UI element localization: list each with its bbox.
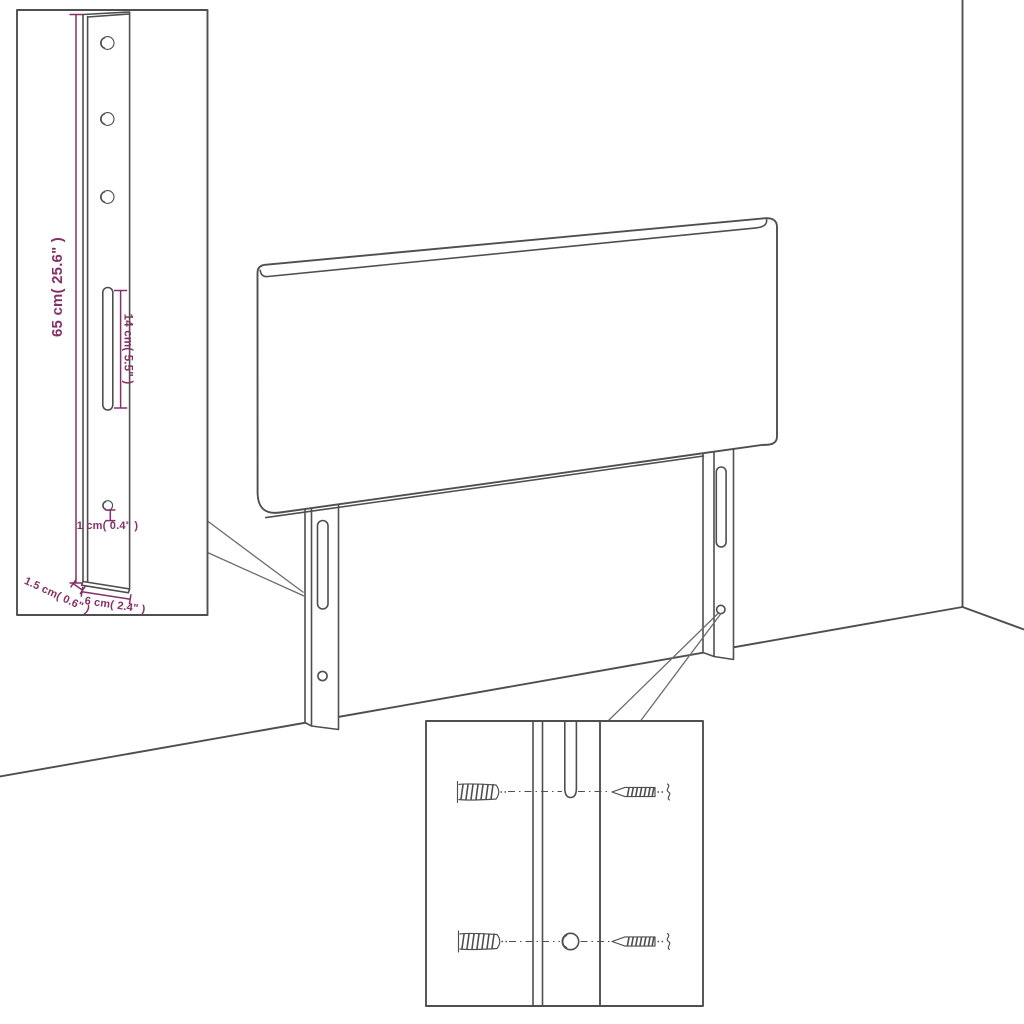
leg-detail-callout: 65 cm( 25.6" ) 14 cm( 5.5" ) 1 cm( 0.4" …: [17, 10, 208, 616]
hardware-callout-connector-right: [641, 614, 722, 722]
leg-slot: [318, 521, 329, 610]
hardware-detail-callout: [426, 721, 703, 1006]
diagram-stage: 65 cm( 25.6" ) 14 cm( 5.5" ) 1 cm( 0.4" …: [0, 0, 1024, 1024]
callout-connectors: [208, 521, 722, 721]
leg-hole: [318, 671, 327, 680]
dimension-label-hole: 1 cm( 0.4" ): [77, 520, 139, 532]
leg-slot: [716, 467, 726, 547]
headboard-panel: [258, 218, 778, 517]
headboard-leg-left: [305, 504, 339, 730]
dimension-label-height: 65 cm( 25.6" ): [49, 237, 66, 337]
floor-line-right: [963, 607, 1024, 630]
leg-slot: [103, 288, 113, 411]
headboard-assembly-diagram: 65 cm( 25.6" ) 14 cm( 5.5" ) 1 cm( 0.4" …: [0, 0, 1024, 1024]
leg-hole: [717, 605, 725, 613]
leg-callout-connector-lower: [208, 553, 305, 597]
headboard-leg-right: [703, 447, 734, 660]
leg-callout-connector-upper: [208, 521, 304, 593]
panel-outline: [258, 218, 778, 513]
dimension-label-slot: 14 cm( 5.5" ): [122, 314, 134, 385]
